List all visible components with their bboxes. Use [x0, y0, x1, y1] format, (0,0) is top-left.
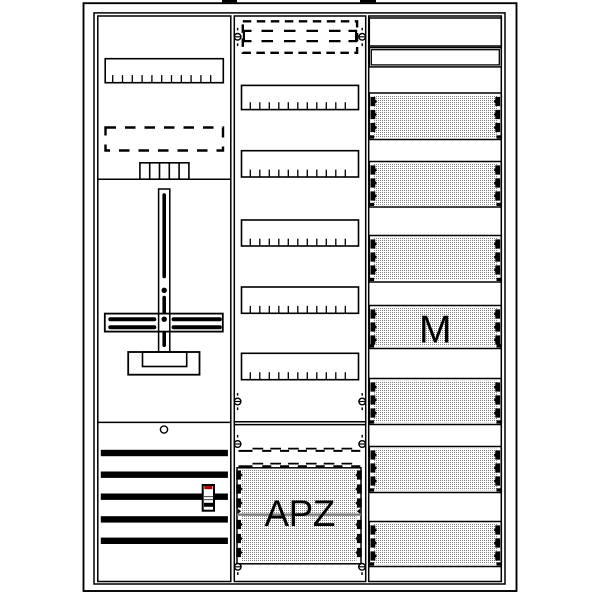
svg-text:M: M — [419, 308, 452, 351]
svg-text:APZ: APZ — [265, 493, 335, 534]
